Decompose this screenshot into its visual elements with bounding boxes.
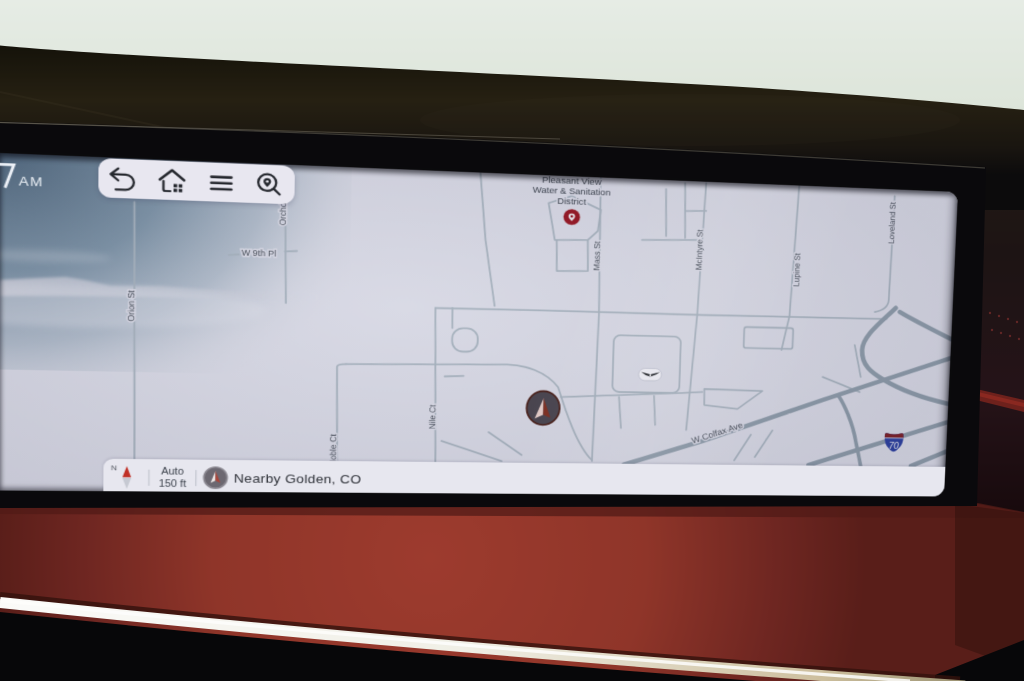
svg-text:N: N: [111, 463, 117, 472]
svg-text:Auto: Auto: [161, 467, 184, 478]
svg-text:Nearby Golden, CO: Nearby Golden, CO: [234, 472, 362, 487]
svg-text:150 ft: 150 ft: [159, 479, 187, 490]
